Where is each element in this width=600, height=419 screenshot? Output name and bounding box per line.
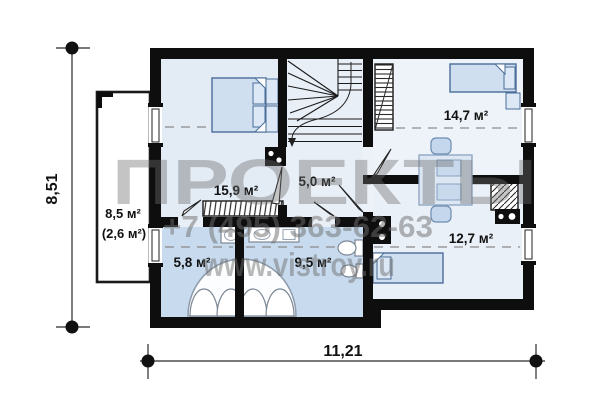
nightstand xyxy=(266,79,278,104)
window xyxy=(521,224,536,265)
watermark-logo: ПРОЕКТЫ xyxy=(112,146,537,218)
width-dimension-label: 11,21 xyxy=(323,343,362,360)
room-label-bedroom-right: 12,7 м² xyxy=(449,231,494,246)
watermark-phone: +7 (495) 363-62-63 xyxy=(163,209,433,244)
balcony-door xyxy=(148,103,163,147)
height-dimension-label: 8,51 xyxy=(44,173,61,204)
balcony-area-note: (2,6 м²) xyxy=(102,226,146,241)
room-label-bedroom-top-right: 14,7 м² xyxy=(444,108,489,123)
wardrobe-hatched-2 xyxy=(375,64,393,130)
nightstand xyxy=(266,106,278,132)
window xyxy=(148,224,163,267)
watermark-website: www.vistroy.ru xyxy=(202,246,395,283)
nightstand xyxy=(506,93,520,109)
floor-plan: 15,9 м² 5,0 м² 14,7 м² 12,7 м² 5,8 м² 9,… xyxy=(0,0,600,419)
window xyxy=(521,103,536,147)
